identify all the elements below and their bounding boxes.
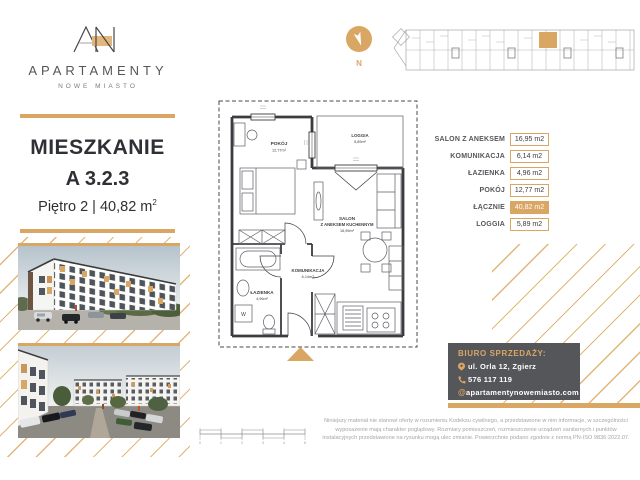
room-area-salon: 16,95m² bbox=[340, 229, 355, 233]
room-area-loggia: 5,89m² bbox=[354, 140, 367, 144]
brand-monogram-icon bbox=[70, 24, 126, 54]
sales-office-title: BIURO SPRZEDAŻY: bbox=[458, 349, 570, 358]
sales-office-address-row: ul. Orla 12, Zgierz bbox=[458, 362, 570, 371]
unit-number: A 3.2.3 bbox=[20, 168, 175, 191]
furniture-kitchen bbox=[315, 246, 403, 334]
unit-area-exponent: 2 bbox=[152, 198, 156, 207]
table-row: ŁAZIENKA 4,96 m2 bbox=[430, 165, 549, 182]
divider-top bbox=[20, 114, 175, 118]
at-sign-icon: @ bbox=[458, 388, 466, 397]
area-row-label: SALON Z ANEKSEM bbox=[430, 136, 510, 143]
legal-disclaimer: Niniejszy materiał nie stanowi oferty w … bbox=[316, 417, 636, 443]
building-render-courtyard bbox=[18, 343, 180, 438]
furniture-sofa bbox=[377, 174, 401, 228]
room-label-pokoj: POKÓJ bbox=[271, 139, 288, 147]
flyer-page: APARTAMENTY NOWE MIASTO MIESZKANIE A 3.2… bbox=[0, 0, 640, 480]
table-row: SALON Z ANEKSEM 16,95 m2 bbox=[430, 131, 549, 148]
disclaimer-line-3: instalacyjnych przedstawione na rysunku … bbox=[316, 434, 636, 443]
unit-floor-area: Piętro 2 | 40,82 m2 bbox=[20, 198, 175, 215]
divider-bottom bbox=[20, 229, 175, 233]
scale-tick: 2 bbox=[241, 441, 243, 445]
location-pin-icon bbox=[458, 362, 468, 371]
plan-walls bbox=[232, 106, 403, 336]
sales-office-phone[interactable]: 576 117 119 bbox=[468, 375, 512, 384]
building-render-courtyard-image bbox=[18, 346, 180, 438]
svg-text:@: @ bbox=[458, 388, 466, 397]
sales-office-website-row[interactable]: @ apartamentynowemiasto.com bbox=[458, 388, 570, 397]
divider-contact bbox=[448, 403, 640, 408]
building-render-street-image bbox=[18, 246, 180, 330]
table-row: KOMUNIKACJA 6,14 m2 bbox=[430, 148, 549, 165]
room-area-lazienka: 4,96m² bbox=[256, 297, 269, 301]
building-site-plan bbox=[390, 18, 638, 76]
furniture-bathtub bbox=[236, 248, 280, 270]
floor-plan: POKÓJ 12,77m² LOGGIA 5,89m² SALON Z ANEK… bbox=[213, 96, 423, 366]
furniture-sink bbox=[237, 280, 249, 296]
scale-tick: 4 bbox=[283, 441, 285, 445]
sales-office-website[interactable]: apartamentynowemiasto.com bbox=[466, 388, 579, 397]
furniture-toilet bbox=[263, 315, 275, 334]
phone-icon bbox=[458, 376, 468, 384]
scale-bar-labels: 0 1 2 3 4 5 bbox=[199, 441, 306, 445]
table-row: LOGGIA 5,89 m2 bbox=[430, 216, 549, 233]
room-label-salon: SALON bbox=[339, 216, 356, 221]
room-area-komunikacja: 6,14m2 bbox=[302, 275, 315, 279]
sales-office-box: BIURO SPRZEDAŻY: ul. Orla 12, Zgierz 576… bbox=[448, 343, 580, 400]
plan-furniture bbox=[234, 123, 403, 334]
room-label-loggia: LOGGIA bbox=[351, 133, 369, 138]
table-row: POKÓJ 12,77 m2 bbox=[430, 182, 549, 199]
disclaimer-line-2: wyposażenie mają charakter poglądowy. Ro… bbox=[316, 426, 636, 435]
plan-doors bbox=[260, 172, 377, 336]
brand-tagline: NOWE MIASTO bbox=[18, 83, 178, 90]
furniture-sideboard bbox=[314, 182, 323, 220]
furniture-dining-table bbox=[361, 232, 391, 272]
unit-area: 40,82 m bbox=[100, 199, 152, 215]
furniture-wardrobe bbox=[239, 230, 285, 244]
entrance-marker bbox=[287, 347, 314, 361]
compass-icon bbox=[346, 26, 372, 52]
scale-tick: 3 bbox=[262, 441, 264, 445]
scale-bar: 0 1 2 3 4 5 bbox=[196, 420, 312, 446]
separator: | bbox=[92, 199, 96, 215]
area-row-value: 12,77 m2 bbox=[510, 184, 549, 197]
plan-room-labels: POKÓJ 12,77m² LOGGIA 5,89m² SALON Z ANEK… bbox=[241, 133, 374, 318]
area-row-label: KOMUNIKACJA bbox=[430, 153, 510, 160]
sales-office-phone-row[interactable]: 576 117 119 bbox=[458, 375, 570, 384]
scale-tick: 1 bbox=[220, 441, 222, 445]
area-row-label: LOGGIA bbox=[430, 221, 510, 228]
room-area-pokoj: 12,77m² bbox=[272, 149, 287, 153]
area-row-value-total: 40,82 m2 bbox=[510, 201, 549, 214]
area-row-value: 4,96 m2 bbox=[510, 167, 549, 180]
room-label-lazienka: ŁAZIENKA bbox=[250, 290, 274, 295]
area-row-label: ŁĄCZNIE bbox=[430, 204, 510, 211]
compass-north-label: N bbox=[344, 59, 374, 68]
brand-logo: APARTAMENTY NOWE MIASTO bbox=[18, 24, 178, 90]
washer-label: W bbox=[241, 312, 246, 318]
unit-title: MIESZKANIE A 3.2.3 Piętro 2 | 40,82 m2 bbox=[20, 136, 175, 215]
area-row-value: 6,14 m2 bbox=[510, 150, 549, 163]
area-row-value: 5,89 m2 bbox=[510, 218, 549, 231]
building-render-street bbox=[18, 243, 180, 330]
furniture-bed bbox=[240, 160, 306, 214]
area-row-value: 16,95 m2 bbox=[510, 133, 549, 146]
scale-tick: 0 bbox=[199, 441, 201, 445]
area-row-label: ŁAZIENKA bbox=[430, 170, 510, 177]
plan-boundary bbox=[219, 101, 417, 347]
brand-name: APARTAMENTY bbox=[18, 63, 178, 78]
furniture-desk-chair bbox=[234, 123, 257, 146]
disclaimer-line-1: Niniejszy materiał nie stanowi oferty w … bbox=[316, 417, 636, 426]
sales-office-address: ul. Orla 12, Zgierz bbox=[468, 362, 536, 371]
unit-floor: Piętro 2 bbox=[38, 199, 88, 215]
compass: N bbox=[344, 26, 374, 68]
table-row-total: ŁĄCZNIE 40,82 m2 bbox=[430, 199, 549, 216]
unit-heading: MIESZKANIE bbox=[20, 136, 175, 160]
room-label-salon-2: Z ANEKSEM KUCHENNYM bbox=[321, 222, 374, 227]
room-label-komunikacja: KOMUNIKACJA bbox=[292, 268, 326, 273]
highlighted-unit-marker bbox=[539, 32, 557, 48]
scale-tick: 5 bbox=[304, 441, 306, 445]
area-table: SALON Z ANEKSEM 16,95 m2 KOMUNIKACJA 6,1… bbox=[430, 131, 549, 233]
area-row-label: POKÓJ bbox=[430, 187, 510, 194]
